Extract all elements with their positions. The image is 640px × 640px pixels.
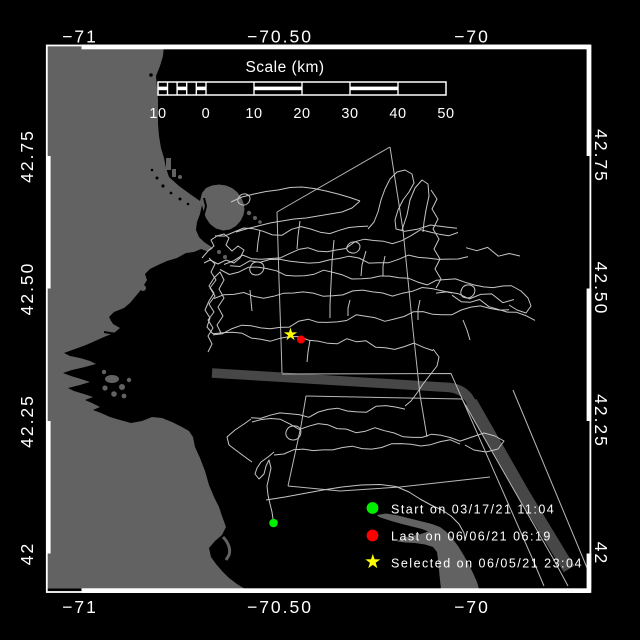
- svg-text:42.75: 42.75: [591, 129, 611, 183]
- svg-text:−71: −71: [62, 597, 98, 617]
- svg-text:10: 10: [149, 106, 166, 122]
- svg-text:0: 0: [202, 106, 211, 122]
- svg-text:42.50: 42.50: [17, 262, 37, 316]
- svg-text:42: 42: [591, 542, 611, 565]
- svg-text:Last on 06/06/21 06:19: Last on 06/06/21 06:19: [391, 530, 552, 544]
- svg-text:30: 30: [341, 106, 358, 122]
- svg-text:42.50: 42.50: [591, 262, 611, 316]
- svg-text:42.25: 42.25: [591, 394, 611, 448]
- svg-text:50: 50: [437, 106, 454, 122]
- svg-text:42: 42: [17, 542, 37, 565]
- svg-text:10: 10: [245, 106, 262, 122]
- svg-text:−70: −70: [454, 27, 490, 47]
- svg-text:20: 20: [293, 106, 310, 122]
- svg-text:−71: −71: [62, 27, 98, 47]
- svg-text:42.75: 42.75: [17, 129, 37, 183]
- svg-text:Start on 03/17/21 11:04: Start on 03/17/21 11:04: [391, 503, 555, 517]
- svg-text:−70.50: −70.50: [247, 27, 313, 47]
- svg-text:Selected on 06/05/21 23:04: Selected on 06/05/21 23:04: [391, 557, 583, 571]
- svg-text:−70: −70: [454, 597, 490, 617]
- svg-text:40: 40: [389, 106, 406, 122]
- svg-text:Scale (km): Scale (km): [245, 59, 324, 76]
- svg-text:42.25: 42.25: [17, 394, 37, 448]
- svg-text:−70.50: −70.50: [247, 597, 313, 617]
